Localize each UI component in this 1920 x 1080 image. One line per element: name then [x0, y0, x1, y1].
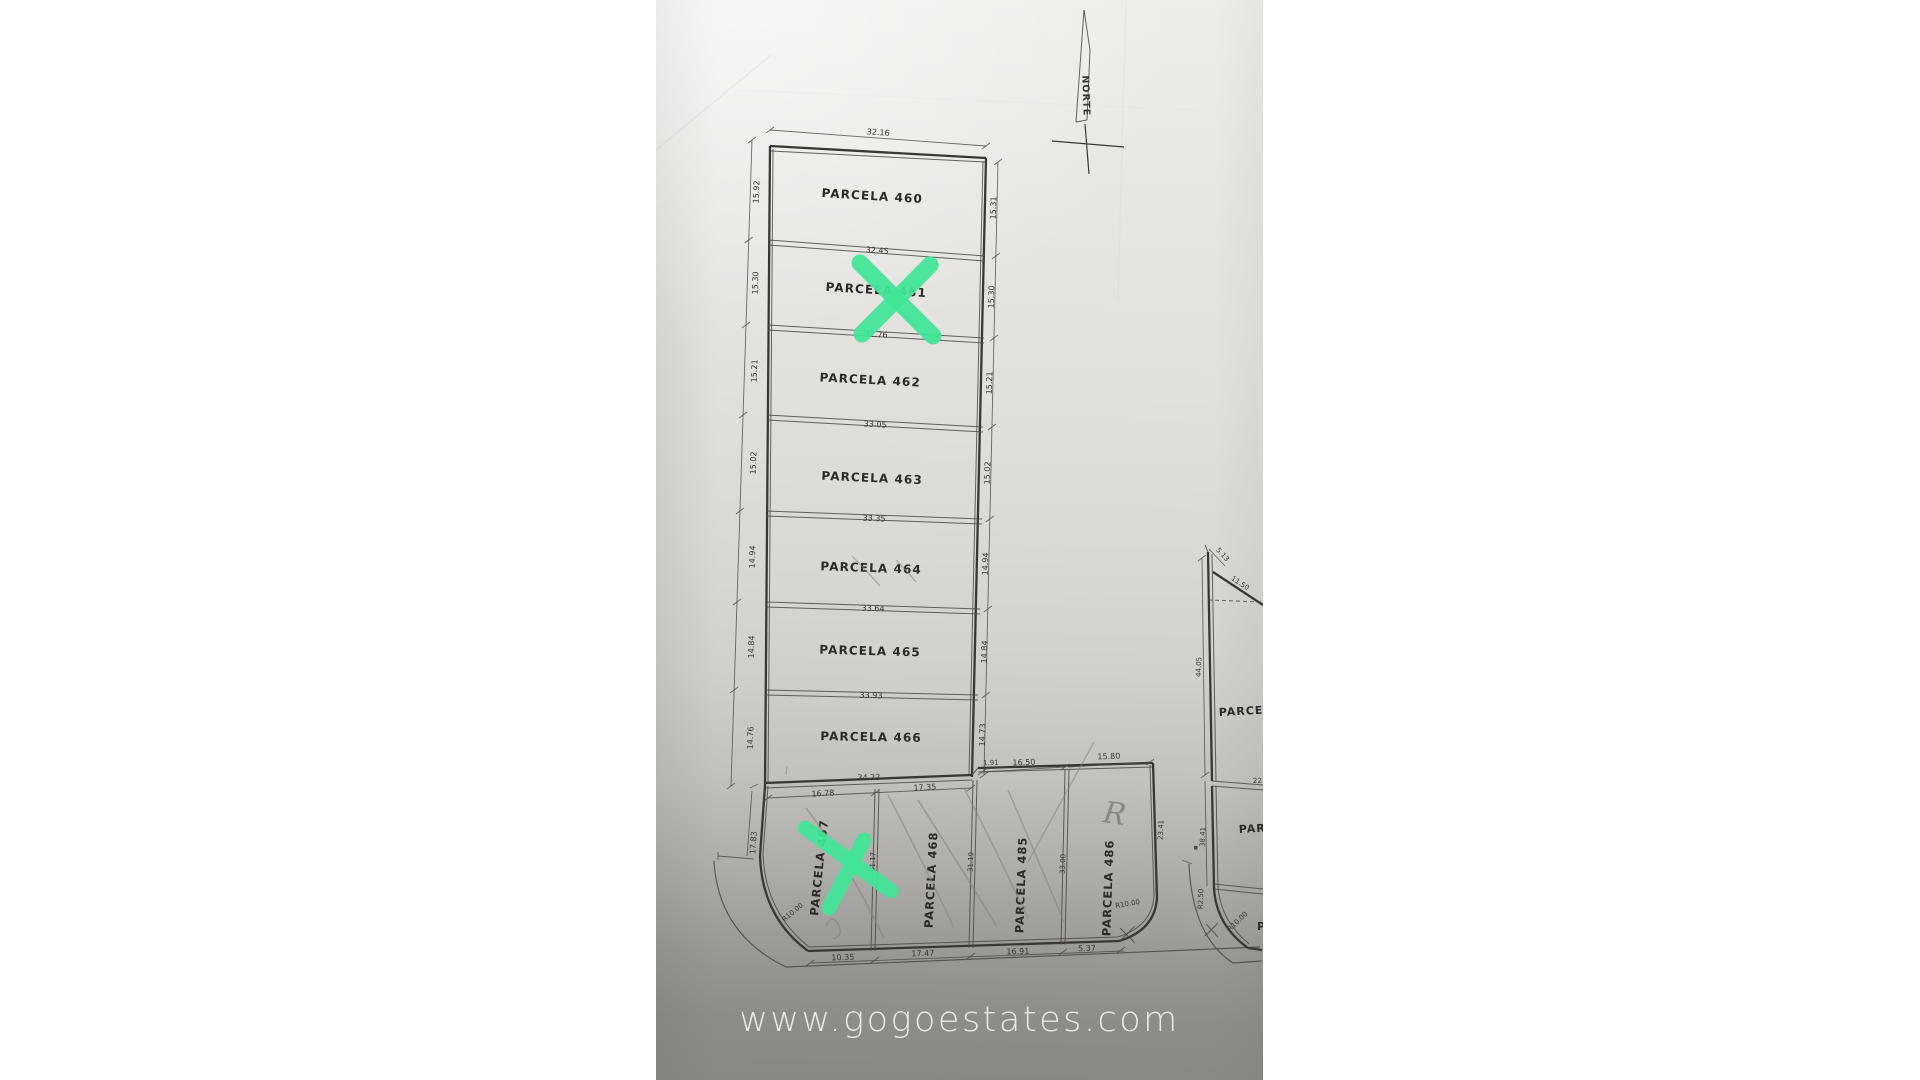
dim-485-right: 33.00 — [1059, 854, 1068, 874]
dim-461-left: 15.30 — [751, 271, 761, 294]
parcela-465-label: PARCELA 465 — [819, 643, 921, 660]
dim-rightplan-left-lower: 38.41 — [1199, 827, 1208, 847]
dim-467-corner-radius: R10.00 — [781, 901, 805, 923]
pencil-note-r: R — [1100, 795, 1128, 833]
dim-468-bottom: 17.47 — [911, 949, 934, 959]
site-plan-svg: NORTE — [656, 0, 1263, 1080]
green-x-marks — [805, 263, 933, 908]
dim-486-corner-radius: R10.00 — [1115, 898, 1141, 910]
dim-466-bottom: 34.22 — [857, 773, 880, 783]
dim-rightplan-divider: 22 — [1253, 777, 1262, 785]
north-arrow-base — [1076, 120, 1087, 122]
dim-rightplan-curve: R2.50 — [1197, 889, 1206, 910]
dim-rightplan-left-upper: 44.05 — [1195, 657, 1204, 677]
scanned-plan-photo: NORTE — [656, 0, 1263, 1080]
dim-485-top: 16.50 — [1012, 758, 1035, 768]
dim-466-right: 14.73 — [978, 723, 988, 746]
bottom-row-labels: PARCELA 467 PARCELA 468 PARCELA 485 PARC… — [807, 819, 1117, 937]
dim-461-right: 15.30 — [987, 285, 997, 308]
dim-486-right: 23.41 — [1156, 820, 1165, 840]
dim-464-top: 33.35 — [862, 514, 885, 524]
dim-466-left: 14.76 — [746, 726, 756, 749]
parcela-460-label: PARCELA 460 — [821, 186, 923, 206]
rightplan-label-upper: PARCEL — [1218, 703, 1263, 719]
dim-465-top: 33.64 — [861, 604, 884, 614]
dim-486-bottom: 5.37 — [1078, 944, 1096, 954]
north-arrow: NORTE — [1052, 10, 1124, 174]
dim-485-bottom: 16.91 — [1006, 947, 1029, 957]
page: NORTE — [0, 0, 1920, 1080]
dim-463-left: 15.02 — [749, 451, 759, 474]
paper-creases — [656, 0, 1196, 300]
rightplan-label-cut: P — [1257, 920, 1263, 933]
dim-463-top: 33.05 — [863, 419, 886, 429]
dim-462-right: 15.21 — [985, 371, 995, 394]
north-cross — [1052, 124, 1124, 174]
parcela-485-label: PARCELA 485 — [1012, 836, 1029, 933]
dim-460-left: 15.92 — [752, 180, 762, 203]
watermark: www.gogoestates.com — [739, 1000, 1179, 1040]
norte-label: NORTE — [1079, 75, 1091, 116]
parcela-466-label: PARCELA 466 — [820, 729, 922, 745]
dim-466-top: 33.93 — [860, 691, 883, 701]
rightplan-label-lower: PARC — [1238, 821, 1263, 836]
dim-464-right: 14.94 — [981, 552, 991, 575]
dim-row-left-seg: 16.78 — [811, 788, 834, 798]
dim-467-bottom: 10.35 — [831, 953, 854, 963]
dim-468-right: 31.19 — [967, 852, 976, 872]
dim-row-jog: 1.91 — [983, 759, 999, 768]
right-plan: 5.13 11.50 44.05 PARCEL 22 38.41 PARC R2… — [1182, 545, 1263, 963]
parcela-462-label: PARCELA 462 — [819, 370, 921, 389]
dim-463-right: 15.02 — [983, 461, 993, 484]
dim-460-top: 32.16 — [866, 127, 889, 138]
parcela-464-label: PARCELA 464 — [820, 559, 922, 577]
dim-row-right-seg: 17.35 — [913, 782, 936, 792]
dim-461-top: 32.45 — [865, 245, 888, 256]
parcela-486-label: PARCELA 486 — [1099, 839, 1116, 936]
dim-465-left: 14.84 — [747, 635, 757, 658]
dim-rightplan-top: 5.13 — [1214, 546, 1230, 563]
stray-dot — [1194, 846, 1198, 850]
main-column-dims: 32.16 32.45 32.76 33.05 33.35 33.64 33.9… — [746, 127, 999, 782]
dim-465-right: 14.84 — [980, 640, 990, 663]
dim-464-left: 14.94 — [748, 545, 758, 568]
dim-460-right: 15.31 — [989, 196, 999, 219]
parcela-463-label: PARCELA 463 — [821, 469, 923, 487]
dim-462-left: 15.21 — [750, 359, 760, 382]
dim-486-top: 15.80 — [1097, 752, 1120, 762]
dim-467-left: 17.83 — [748, 831, 759, 854]
